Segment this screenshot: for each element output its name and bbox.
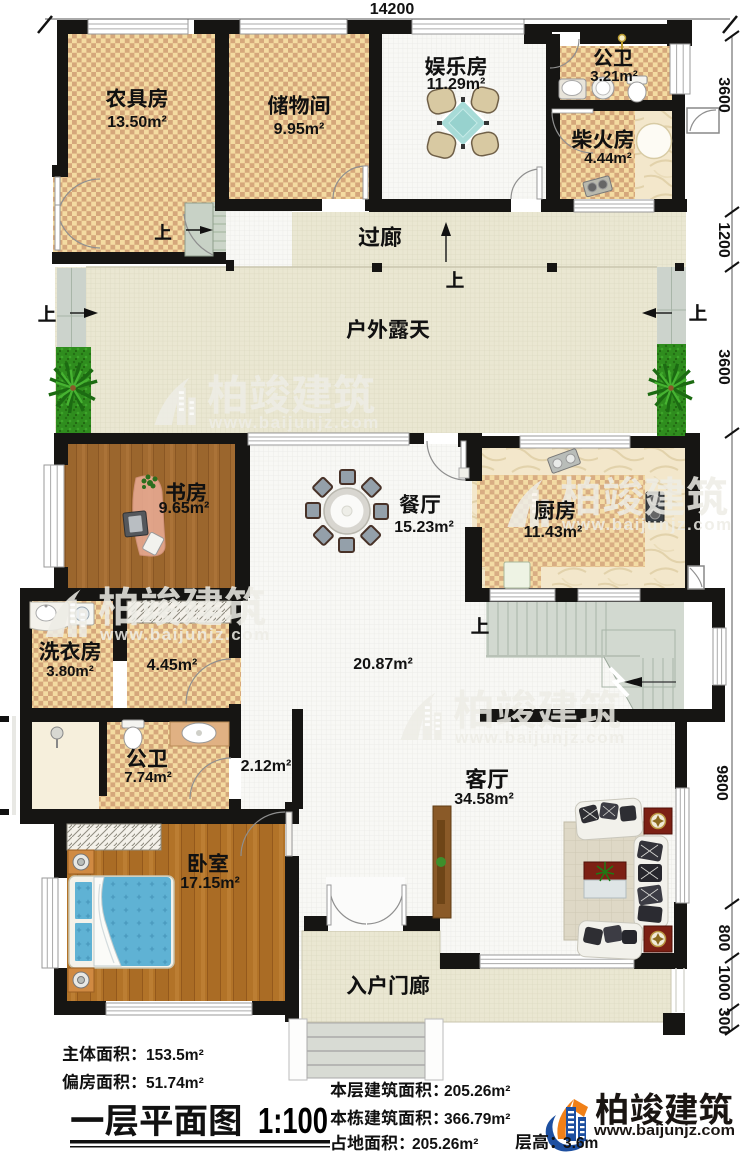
svg-text:9.95m²: 9.95m² [274,121,325,138]
svg-text:205.26m²: 205.26m² [412,1136,478,1153]
svg-text:1000: 1000 [715,965,732,1001]
svg-text:34.58m²: 34.58m² [454,791,514,808]
svg-text:3600: 3600 [715,349,732,385]
svg-text:15.23m²: 15.23m² [394,519,454,536]
svg-text:11.43m²: 11.43m² [524,524,583,541]
svg-text:800: 800 [715,925,732,952]
svg-text:20.87m²: 20.87m² [353,656,413,673]
svg-text:300: 300 [715,1008,732,1035]
svg-text:www.baijunjz.com: www.baijunjz.com [561,515,733,534]
svg-text:17.15m²: 17.15m² [180,875,240,892]
svg-text:14200: 14200 [370,1,415,18]
svg-text:13.50m²: 13.50m² [107,114,167,131]
svg-text:3.80m²: 3.80m² [46,663,94,680]
svg-text:2.12m²: 2.12m² [241,758,292,775]
svg-text:51.74m²: 51.74m² [146,1075,204,1092]
svg-text:www.baijunjz.com: www.baijunjz.com [208,413,380,432]
svg-text:1:100: 1:100 [258,1100,328,1141]
svg-text:www.baijunjz.com: www.baijunjz.com [593,1123,735,1139]
svg-text:11.29m²: 11.29m² [427,76,486,93]
svg-text:www.baijunjz.com: www.baijunjz.com [454,728,626,747]
svg-text:205.26m²: 205.26m² [444,1083,510,1100]
svg-text:9800: 9800 [713,765,730,801]
svg-text:3600: 3600 [715,77,732,113]
svg-text:www.baijunjz.com: www.baijunjz.com [99,625,271,644]
svg-text:4.44m²: 4.44m² [584,150,632,167]
svg-text:7.74m²: 7.74m² [124,769,172,786]
svg-text:366.79m²: 366.79m² [444,1111,510,1128]
svg-text:1200: 1200 [715,222,732,258]
svg-text:4.45m²: 4.45m² [147,657,198,674]
svg-text:3.21m²: 3.21m² [590,68,638,85]
svg-text:153.5m²: 153.5m² [146,1047,204,1064]
svg-text:9.65m²: 9.65m² [159,500,210,517]
